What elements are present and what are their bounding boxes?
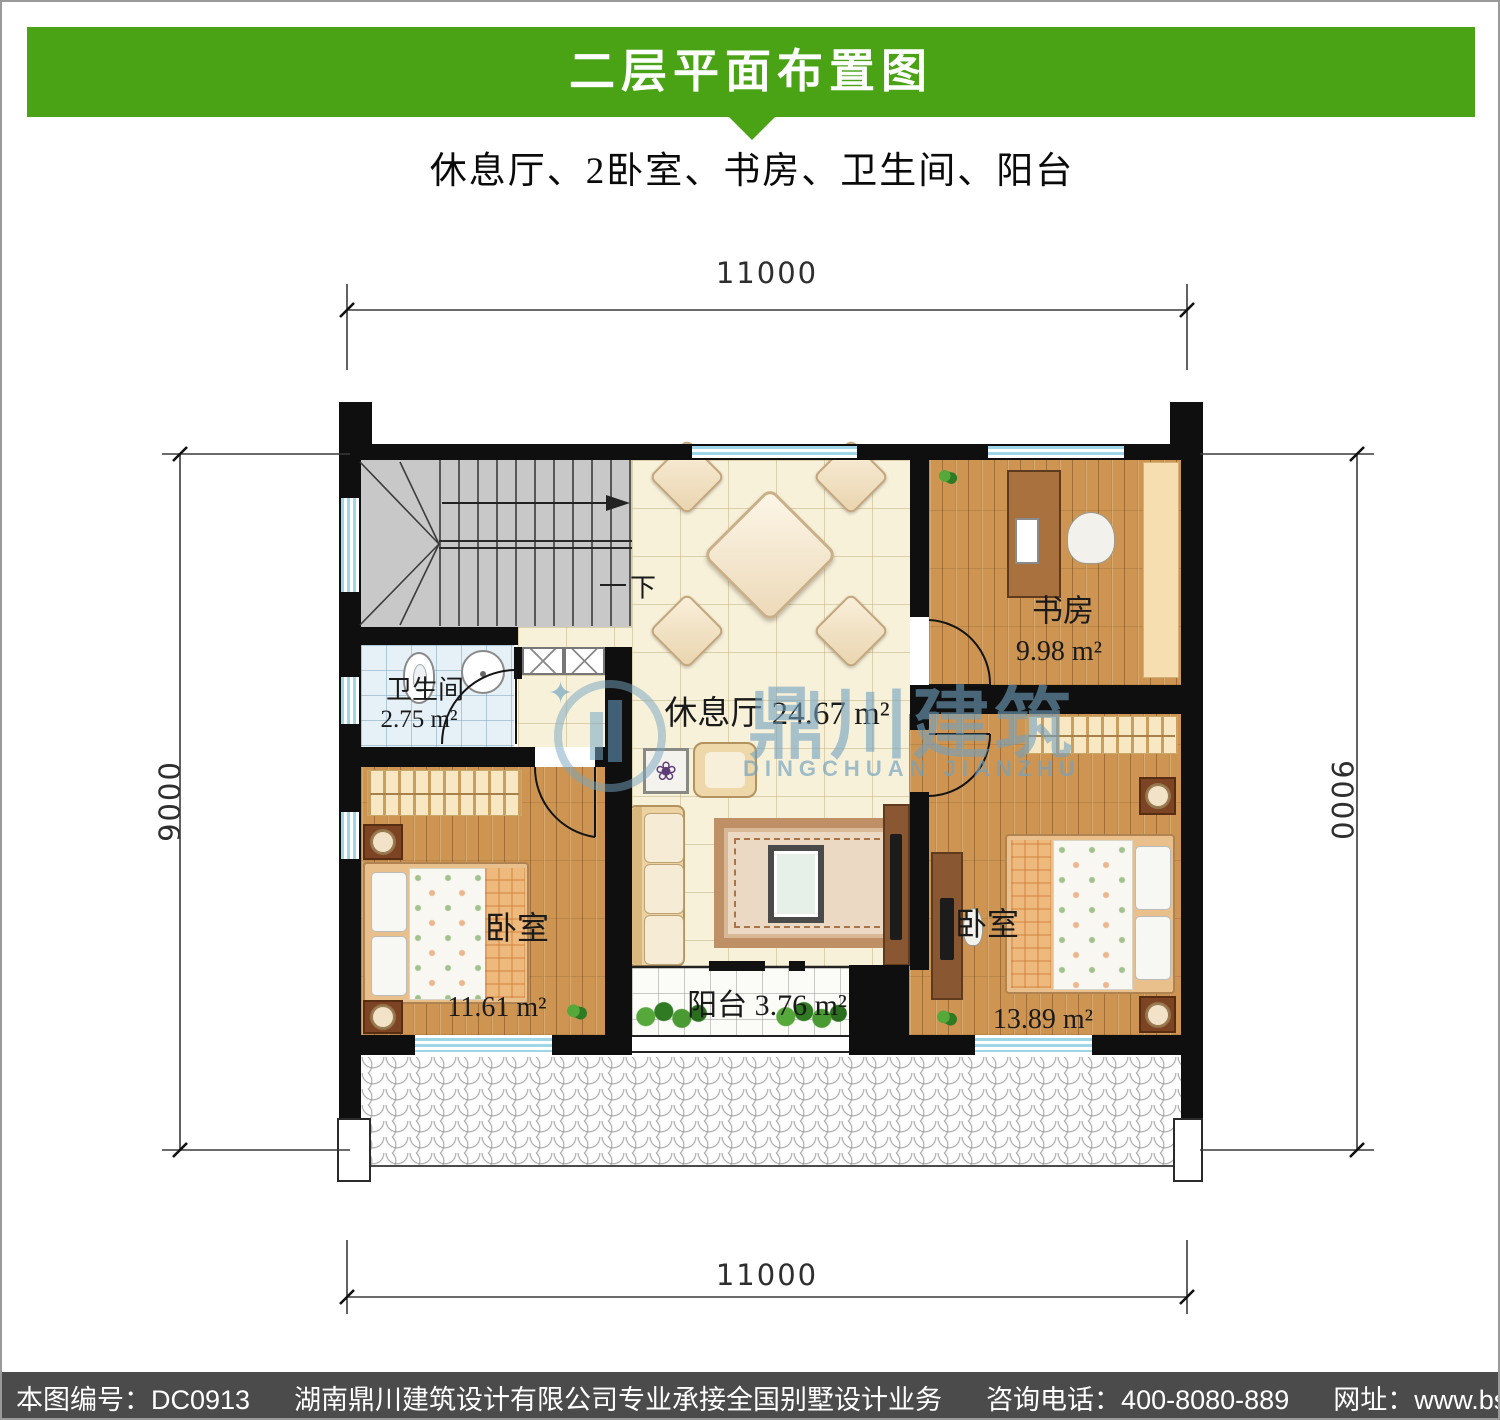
wall-right [1181, 444, 1203, 1120]
room-label-study: 书房 [1032, 586, 1094, 631]
nightstand [1139, 777, 1176, 815]
wall-bathroom-side [514, 647, 522, 679]
roof-overhang [361, 1057, 1181, 1167]
room-label-lounge: 休息厅 24.67 m² [664, 686, 889, 734]
wall-study-side [910, 460, 929, 617]
wall-bottom [361, 1035, 415, 1055]
room-label-bathroom: 卫生间 [386, 670, 464, 707]
nightstand [363, 824, 403, 860]
wall-study-bottom [910, 685, 1181, 714]
armchair [693, 742, 757, 798]
room-area-bedroom-left: 11.61 m² [447, 992, 546, 1024]
wall-post [337, 1118, 371, 1182]
study-chair [1067, 512, 1115, 564]
room-label-balcony: 阳台 3.76 m² [687, 980, 847, 1024]
wall-stairs-bottom [361, 627, 518, 645]
wall-post [1173, 1118, 1203, 1182]
room-label-bedroom-left: 卧室 [485, 903, 549, 949]
window [692, 446, 857, 458]
wardrobe-right [1025, 716, 1178, 754]
stairs-area [361, 460, 632, 627]
stairs-down-label: 下 [630, 568, 656, 605]
room-area-study: 9.98 m² [1016, 636, 1102, 668]
study-closet [1143, 462, 1179, 678]
computer-monitor-icon [1015, 518, 1039, 564]
header-pointer-triangle [729, 117, 775, 140]
sofa [628, 805, 685, 967]
footer-drawing-no: 本图编号：DC0913 [16, 1378, 250, 1417]
room-label-bedroom-right: 卧室 [955, 899, 1019, 945]
nightstand [1139, 996, 1176, 1033]
wall-door-stub [910, 714, 929, 730]
footer-company: 湖南鼎川建筑设计有限公司专业承接全国别墅设计业务 [294, 1378, 942, 1417]
dimension-left-label: 9000 [153, 741, 187, 861]
flower-picture: ❀ [643, 748, 689, 794]
wall-bathroom-bottom [361, 747, 535, 767]
nightstand [363, 1000, 403, 1034]
wall-door-stub [595, 747, 605, 767]
page-subtitle: 休息厅、2卧室、书房、卫生间、阳台 [2, 140, 1500, 194]
plant-icon [937, 466, 959, 488]
hall-cabinet [564, 647, 605, 675]
floor-plan: ❀ [337, 400, 1205, 1187]
bed-right [1005, 834, 1175, 994]
dimension-right-label: 9000 [1325, 741, 1359, 861]
study-desk [1007, 470, 1061, 598]
window [341, 677, 359, 724]
room-area-bathroom: 2.75 m² [381, 706, 458, 734]
page-title: 二层平面布置图 [27, 27, 1475, 115]
window [975, 1038, 1092, 1052]
plant-icon [935, 1006, 959, 1030]
dimension-top-label: 11000 [667, 256, 867, 290]
balcony-railing [632, 1035, 849, 1053]
tv-icon [890, 834, 902, 940]
wall-bottom [552, 1035, 605, 1055]
window [415, 1038, 552, 1052]
footer-website: 网址：www.bstzcs.com [1333, 1378, 1500, 1417]
wall-balcony-pier [849, 965, 909, 1055]
hall-cabinet [522, 647, 564, 675]
wall-bottom [909, 1035, 975, 1055]
footer-phone: 咨询电话：400-8080-889 [986, 1378, 1289, 1417]
flower-icon: ❀ [655, 756, 677, 786]
sink-icon [461, 650, 505, 694]
page-canvas: 二层平面布置图 休息厅、2卧室、书房、卫生间、阳台 11000 11000 90… [0, 0, 1500, 1420]
plant-icon [565, 1000, 589, 1024]
coffee-table [768, 845, 824, 923]
header-bar: 二层平面布置图 [27, 27, 1475, 117]
window [341, 812, 359, 859]
bedroom-tv-icon [940, 898, 954, 960]
wall-bottom [1092, 1035, 1181, 1055]
footer-bar: 本图编号：DC0913 湖南鼎川建筑设计有限公司专业承接全国别墅设计业务 咨询电… [2, 1372, 1500, 1420]
wall-bedroom-left-side [605, 647, 632, 1055]
window [988, 446, 1124, 458]
wardrobe-left [367, 770, 522, 816]
room-area-bedroom-right: 13.89 m² [993, 1004, 1093, 1036]
wall-bedroom-right-side [910, 792, 929, 970]
dimension-bottom-label: 11000 [667, 1258, 867, 1292]
tv-cabinet [883, 804, 910, 966]
window [341, 498, 359, 592]
